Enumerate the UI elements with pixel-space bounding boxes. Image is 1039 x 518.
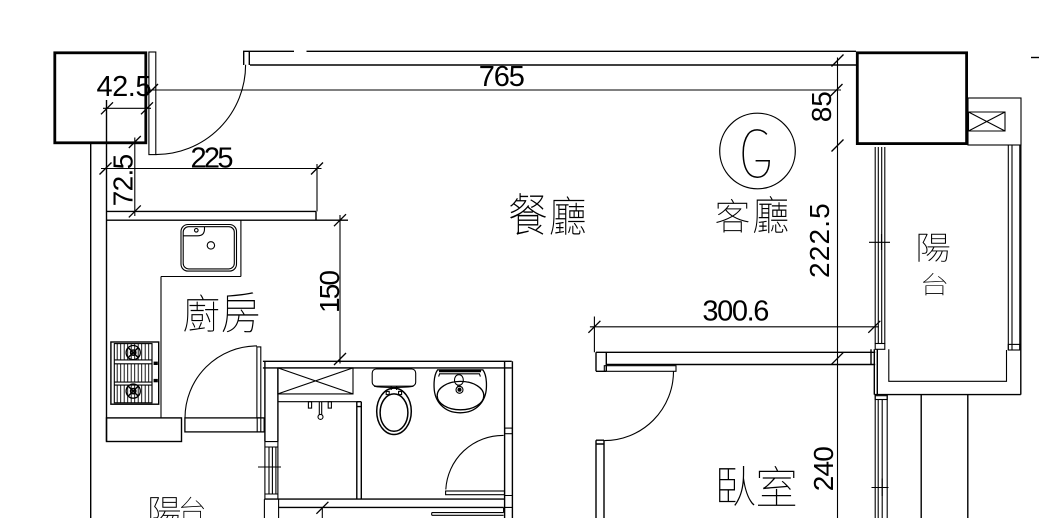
svg-text:240: 240: [808, 446, 839, 491]
svg-text:765: 765: [479, 61, 525, 93]
svg-text:300.6: 300.6: [702, 296, 769, 328]
svg-text:222.5: 222.5: [804, 203, 835, 278]
svg-text:150: 150: [314, 270, 345, 313]
svg-text:42.5: 42.5: [97, 71, 152, 103]
svg-text:72.5: 72.5: [108, 154, 139, 207]
svg-text:225: 225: [190, 142, 233, 174]
svg-text:85: 85: [806, 91, 837, 122]
